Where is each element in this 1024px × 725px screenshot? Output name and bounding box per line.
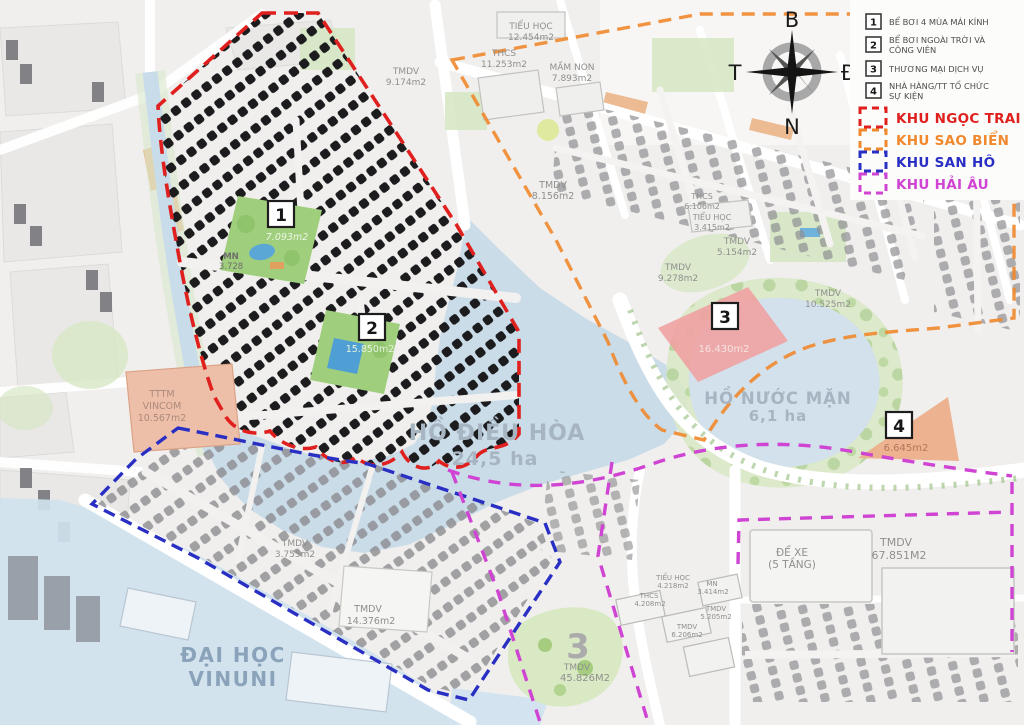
- thcs-building: [478, 70, 544, 120]
- parcel-label: 8.156m2: [532, 191, 575, 202]
- marker-3-area: 16.430m2: [698, 344, 749, 355]
- compass-south: N: [784, 115, 800, 139]
- marker-1-area: 7.093m2: [266, 232, 309, 243]
- vincom-label: 10.567m2: [138, 413, 187, 424]
- parcel-label: TMDV: [676, 623, 698, 631]
- legend-item-1-num: 1: [870, 18, 877, 29]
- parcel-label: MN: [223, 252, 239, 262]
- parcel-label: TMDV: [392, 67, 420, 77]
- parcel-label: 7.893m2: [552, 74, 592, 84]
- parcel-label: TMDV: [723, 237, 751, 247]
- parcel-label: THCS: [639, 592, 659, 600]
- parcel-label: 67.851M2: [872, 549, 927, 562]
- parking-label: ĐỂ XE: [776, 545, 808, 559]
- legend-item-4-label: NHÀ HÀNG/TT TỔ CHỨC: [889, 79, 989, 91]
- legend-zone-ngoc-trai-label: KHU NGỌC TRAI: [896, 111, 1021, 127]
- lake-dieu-hoa-area: 24,5 ha: [452, 448, 539, 470]
- tmdv-67851-building: [882, 568, 1014, 654]
- parcel-label: 5.154m2: [717, 248, 757, 258]
- compass-north: B: [785, 8, 799, 32]
- masterplan-map: 1 7.093m2 2 15.850m2 3 16.430m2 4 6.645m…: [0, 0, 1024, 725]
- parcel-label: 3.415m2: [694, 223, 730, 232]
- parcel-label: 6.206m2: [671, 631, 702, 639]
- parcel-label: 14.376m2: [347, 616, 396, 627]
- marker-4-area: 6.645m2: [884, 443, 929, 454]
- parcel-label: 3.728: [219, 262, 243, 272]
- marker-3b-area: 45.826M2: [560, 673, 610, 684]
- parcel-label: TMDV: [879, 536, 912, 549]
- vincom-label: VINCOM: [143, 401, 182, 412]
- legend-item-3-num: 3: [870, 65, 877, 76]
- parcel-label: 3.414m2: [697, 588, 728, 596]
- marker-4-number: 4: [893, 417, 905, 437]
- parcel-label: 4.208m2: [634, 600, 665, 608]
- parcel-label: THCS: [491, 49, 517, 59]
- lake-nuoc-man-name: HỒ NƯỚC MẶN: [704, 386, 851, 408]
- parcel-label: 4.218m2: [657, 582, 688, 590]
- parking-label: (5 TẦNG): [768, 557, 816, 571]
- vinuni-label: VINUNI: [188, 667, 277, 691]
- legend-zone-hai-au-label: KHU HẢI ÂU: [896, 174, 989, 193]
- marker-2-area: 15.850m2: [346, 344, 395, 355]
- parcel-label: TIỂU HỌC: [655, 572, 690, 582]
- vinuni-label: ĐẠI HỌC: [180, 643, 286, 667]
- legend-item-2-num: 2: [870, 41, 877, 52]
- parcel-label: 12.454m2: [508, 33, 554, 43]
- amenity-2: 2 15.850m2: [310, 310, 400, 394]
- parcel-label: TMDV: [664, 263, 692, 273]
- parcel-label: 10.525m2: [805, 300, 851, 310]
- legend-item-3-label: THƯƠNG MẠI DỊCH VỤ: [888, 64, 983, 75]
- parcel-label: TMDV: [705, 605, 727, 613]
- parcel-label: MN: [706, 580, 717, 588]
- parcel-label: 5.205m2: [700, 613, 731, 621]
- mam-non-building: [556, 82, 604, 116]
- legend-zone-san-ho-label: KHU SAN HÔ: [896, 153, 995, 171]
- parcel-label: 9.174m2: [386, 78, 426, 88]
- legend: 1 BỂ BƠI 4 MÙA MÁI KÍNH 2 BỂ BƠI NGOÀI T…: [850, 0, 1024, 200]
- parcel-label: THCS: [690, 192, 713, 201]
- parcel-label: 3.755m2: [275, 550, 315, 560]
- legend-item-4-label: SỰ KIỆN: [889, 90, 923, 102]
- vincom-label: TTTM: [148, 389, 174, 400]
- legend-item-2-label: BỂ BƠI NGOÀI TRỜI VÀ: [889, 33, 985, 45]
- marker-3-number: 3: [719, 308, 731, 328]
- lake-dieu-hoa-name: HỒ ĐIỀU HÒA: [409, 417, 586, 446]
- parcel-label: 6.106m2: [684, 202, 720, 211]
- legend-item-1-label: BỂ BƠI 4 MÙA MÁI KÍNH: [889, 15, 989, 27]
- parcel-label: 9.278m2: [658, 274, 698, 284]
- marker-2-number: 2: [366, 319, 378, 339]
- parcel-label: TMDV: [538, 180, 567, 191]
- legend-item-2-label: CÔNG VIÊN: [889, 44, 936, 55]
- parcel-label: TMDV: [814, 289, 842, 299]
- parcel-label: 11.253m2: [481, 60, 527, 70]
- marker-3b-name: TMDV: [563, 663, 591, 673]
- parcel-label: TMDV: [281, 539, 309, 549]
- marker-3b-number: 3: [566, 627, 590, 667]
- lake-nuoc-man-area: 6,1 ha: [749, 407, 808, 425]
- legend-item-4-num: 4: [870, 87, 877, 98]
- compass-west: T: [728, 61, 742, 85]
- parcel-label: TMDV: [353, 604, 382, 615]
- marker-1-number: 1: [275, 206, 287, 226]
